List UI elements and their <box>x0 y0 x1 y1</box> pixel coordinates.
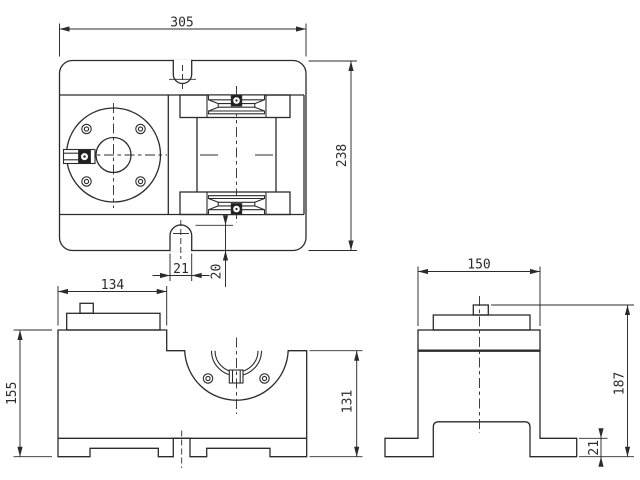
dim-side-foot-height-label: 21 <box>587 440 602 456</box>
dim-side-width-label: 150 <box>467 258 490 273</box>
dim-top-height-label: 238 <box>335 144 350 167</box>
top-view <box>60 60 307 259</box>
front-top-plate <box>67 313 160 330</box>
dim-side-height-label: 187 <box>613 372 628 395</box>
top-view-dimensions: 305 238 21 20 <box>60 16 358 288</box>
drawing-page: 305 238 21 20 <box>0 0 640 480</box>
technical-drawing-canvas: 305 238 21 20 <box>0 0 640 480</box>
side-top-plate <box>433 315 530 330</box>
front-top-knob <box>80 303 93 313</box>
spool-top <box>209 95 265 114</box>
front-view <box>58 303 307 468</box>
dim-slot-depth-label: 20 <box>210 264 225 280</box>
dim-front-right-height-label: 131 <box>341 390 356 413</box>
side-top-knob <box>473 305 488 315</box>
side-view-dimensions: 150 187 21 <box>418 258 634 467</box>
spool-bottom <box>209 196 265 215</box>
side-body-outline <box>385 351 577 457</box>
dim-front-height-label: 155 <box>5 382 20 405</box>
dim-slot-width-label: 21 <box>173 262 189 277</box>
side-view <box>385 296 577 457</box>
dim-top-width-label: 305 <box>170 16 193 31</box>
dim-front-width-label: 134 <box>101 278 125 293</box>
side-upper-block <box>418 330 540 351</box>
